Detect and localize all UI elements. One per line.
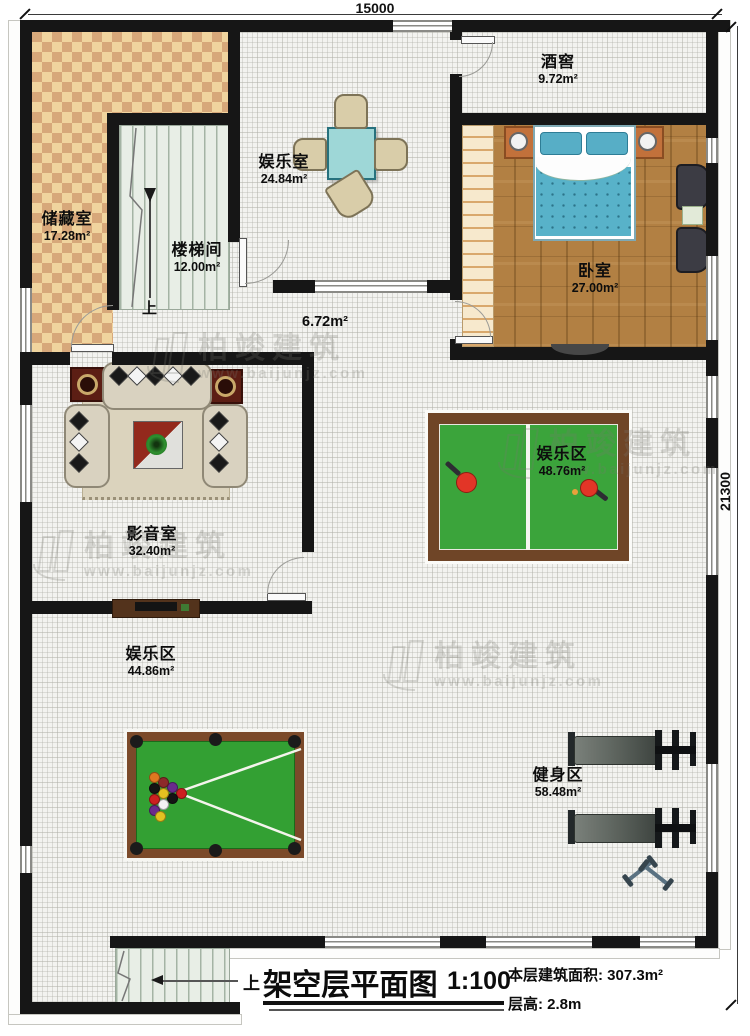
- bedroom-door: [455, 336, 493, 344]
- window-bottom-1: [325, 936, 440, 948]
- stairwell-stairs: [119, 125, 230, 310]
- stair-up-label: 上: [142, 297, 157, 318]
- pillow: [540, 132, 582, 155]
- floor-height-value: 2.8m: [547, 996, 581, 1013]
- wall-top: [20, 20, 730, 32]
- storage-floor-top: [32, 32, 228, 113]
- exterior-stair-up-label: 上: [243, 969, 260, 994]
- drawing-scale: 1:100: [447, 967, 511, 996]
- wall-storage-right: [228, 32, 240, 242]
- exterior-trim-bottom-left: [8, 1014, 242, 1025]
- stair-break-line-icon: [116, 949, 229, 1003]
- wall-storage-bottom: [20, 352, 70, 365]
- floor-height-info: 层高: 2.8m: [508, 993, 581, 1014]
- watermark-logo-icon: [33, 528, 75, 582]
- title-underline-thick: [263, 1001, 504, 1005]
- watermark-url: www.baijunjz.com: [84, 563, 253, 580]
- ping-pong-paddle: [456, 472, 477, 493]
- title-underline-thin: [269, 1009, 504, 1011]
- dimension-width: 15000: [28, 0, 722, 16]
- wall-bedroom-left: [450, 125, 462, 300]
- stair-direction-arrow-icon: [144, 188, 156, 202]
- window-left-2: [20, 405, 32, 502]
- side-table: [682, 206, 703, 225]
- weight-bench: [568, 808, 700, 848]
- wall-stairwell-top: [107, 113, 240, 125]
- watermark: 柏竣建筑 www.baijunjz.com: [383, 638, 603, 692]
- pillow: [586, 132, 628, 155]
- ping-pong-ball: [572, 489, 578, 495]
- speaker-cone-icon: [77, 374, 98, 395]
- window-left-3: [20, 846, 32, 873]
- window-right-2: [706, 256, 718, 340]
- room-label-entertainment-room: 娱乐室24.84m²: [239, 154, 329, 186]
- weight-bench: [568, 730, 700, 770]
- dimension-tick: [725, 999, 736, 1010]
- watermark-brand: 柏竣建筑: [198, 332, 346, 365]
- watermark: 柏竣建筑 www.baijunjz.com: [147, 330, 367, 384]
- chair: [334, 94, 368, 129]
- barbell: [655, 824, 696, 832]
- bench-pad: [574, 814, 660, 843]
- corridor-area-label: 6.72m²: [280, 314, 370, 330]
- wall-entertainment-room-bottom-a: [273, 280, 317, 293]
- floor-area-info: 本层建筑面积: 307.3m²: [508, 964, 663, 985]
- floor-plan-canvas: 柏竣建筑 www.baijunjz.com 柏竣建筑 www.baijunjz.…: [0, 0, 750, 1036]
- room-label-gym-area: 健身区58.48m²: [513, 767, 603, 799]
- pool-ball: [149, 772, 160, 783]
- window-right-3: [706, 376, 718, 418]
- dimension-height: 21300: [717, 472, 733, 511]
- stair-break-line-icon: [120, 126, 229, 309]
- tv-cabinet: [112, 599, 200, 618]
- floor-area-value: 307.3m²: [607, 967, 663, 984]
- room-label-storage: 储藏室17.28m²: [22, 211, 112, 243]
- tv-icon: [135, 602, 177, 611]
- lamp-icon: [638, 132, 657, 151]
- pool-ball: [149, 794, 160, 805]
- exterior-stair-direction-arrow-icon: [151, 975, 163, 985]
- window-interior-corridor: [315, 280, 427, 293]
- armchair: [676, 164, 710, 210]
- watermark-logo-icon: [147, 330, 189, 384]
- watermark-url: www.baijunjz.com: [434, 673, 603, 690]
- speaker: [70, 367, 105, 402]
- floor-height-label: 层高:: [508, 996, 543, 1013]
- watermark-logo-icon: [383, 638, 425, 692]
- window-right-1: [706, 138, 718, 163]
- wall-bedroom-top: [450, 113, 706, 125]
- wall-bottom-exterior-stair: [20, 1002, 240, 1014]
- window-top: [393, 20, 452, 32]
- window-left-1: [20, 288, 32, 352]
- pool-table: [127, 732, 304, 858]
- drawing-title: 架空层平面图: [263, 960, 438, 1004]
- window-bottom-2: [486, 936, 592, 948]
- room-label-entertainment-area-2: 娱乐区44.86m²: [106, 646, 196, 678]
- chair: [374, 138, 408, 171]
- room-label-wine-cellar: 酒窖9.72m²: [513, 54, 603, 86]
- ping-pong-paddle: [580, 479, 598, 497]
- window-right-5: [706, 764, 718, 872]
- watermark-url: www.baijunjz.com: [198, 365, 367, 382]
- room-label-entertainment-area-1: 娱乐区48.76m²: [517, 446, 607, 478]
- armchair: [676, 227, 710, 273]
- dimension-line-right: [737, 26, 738, 1004]
- bench-pad: [574, 736, 660, 765]
- sofa-left: [64, 404, 110, 488]
- room-label-stairwell: 楼梯间12.00m²: [152, 242, 242, 274]
- floor-area-label: 本层建筑面积:: [508, 967, 603, 984]
- watermark-brand: 柏竣建筑: [434, 640, 582, 673]
- pool-ball: [149, 783, 160, 794]
- barbell: [655, 746, 696, 754]
- bed: [533, 125, 636, 241]
- exterior-stair-direction-line: [162, 980, 238, 982]
- exterior-stairs: [115, 948, 230, 1004]
- stair-direction-line: [149, 196, 151, 298]
- nightstand: [504, 126, 535, 159]
- room-label-media-room: 影音室32.40m²: [107, 526, 197, 558]
- window-bottom-3: [640, 936, 695, 948]
- decor-item: [181, 604, 189, 611]
- room-label-bedroom: 卧室27.00m²: [550, 263, 640, 295]
- nightstand: [633, 126, 664, 159]
- wall-wine-cellar-left: [450, 74, 462, 118]
- plant-icon: [146, 434, 167, 455]
- pool-ball: [155, 811, 166, 822]
- lamp-icon: [509, 132, 528, 151]
- media-room-door: [267, 593, 306, 601]
